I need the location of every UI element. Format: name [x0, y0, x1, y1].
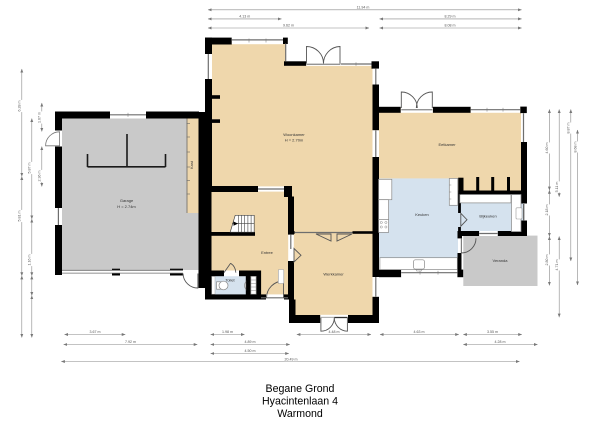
svg-text:9.62 m: 9.62 m	[283, 24, 294, 28]
svg-text:3.55 m: 3.55 m	[487, 330, 498, 334]
svg-text:4.13 m: 4.13 m	[239, 14, 250, 18]
svg-text:20.49 m: 20.49 m	[285, 357, 298, 361]
svg-text:2.36 m: 2.36 m	[38, 171, 42, 182]
svg-text:Werkkamer: Werkkamer	[323, 272, 344, 277]
svg-text:7.92 m: 7.92 m	[125, 340, 136, 344]
svg-text:Bijkeuken: Bijkeuken	[479, 214, 496, 219]
svg-text:1.98 m: 1.98 m	[222, 330, 233, 334]
svg-text:11.94 m: 11.94 m	[357, 5, 370, 9]
svg-text:Kast: Kast	[189, 160, 194, 169]
svg-text:1.67 m: 1.67 m	[38, 112, 42, 123]
svg-text:2.80 m: 2.80 m	[545, 255, 549, 266]
svg-text:8.68 m: 8.68 m	[573, 142, 577, 153]
svg-text:Hyacintenlaan 4: Hyacintenlaan 4	[262, 396, 338, 408]
svg-text:5.11 m: 5.11 m	[555, 182, 559, 193]
svg-text:4.63 m: 4.63 m	[414, 330, 425, 334]
svg-text:4.89 m: 4.89 m	[245, 340, 256, 344]
svg-text:Woonkamer: Woonkamer	[283, 132, 305, 137]
svg-text:Toilet: Toilet	[225, 278, 235, 283]
svg-text:4.71 m: 4.71 m	[555, 260, 559, 271]
svg-text:Veranda: Veranda	[493, 258, 509, 263]
svg-text:Keuken: Keuken	[415, 212, 429, 217]
svg-text:Garage: Garage	[120, 198, 134, 203]
svg-text:4.50 m: 4.50 m	[245, 349, 256, 353]
svg-text:8.87 m: 8.87 m	[567, 123, 571, 134]
svg-text:4.48 m: 4.48 m	[329, 330, 340, 334]
svg-text:8.29 m: 8.29 m	[445, 14, 456, 18]
svg-text:H = 2.70m: H = 2.70m	[285, 138, 304, 143]
svg-text:8.08 m: 8.08 m	[445, 24, 456, 28]
svg-text:6.28 m: 6.28 m	[18, 101, 22, 112]
svg-text:1.16 m: 1.16 m	[28, 255, 32, 266]
svg-text:H = 2.74m: H = 2.74m	[117, 204, 136, 209]
svg-text:Begane Grond: Begane Grond	[266, 383, 335, 395]
svg-text:Entree: Entree	[261, 250, 274, 255]
svg-text:Warmond: Warmond	[277, 408, 323, 420]
svg-text:2.18 m: 2.18 m	[545, 205, 549, 216]
svg-text:Eetkamer: Eetkamer	[438, 142, 456, 147]
svg-text:4.28 m: 4.28 m	[495, 340, 506, 344]
svg-text:3.67 m: 3.67 m	[90, 330, 101, 334]
svg-text:5.81 m: 5.81 m	[18, 211, 22, 222]
svg-text:4.60 m: 4.60 m	[545, 143, 549, 154]
svg-text:5.87 m: 5.87 m	[28, 163, 32, 174]
